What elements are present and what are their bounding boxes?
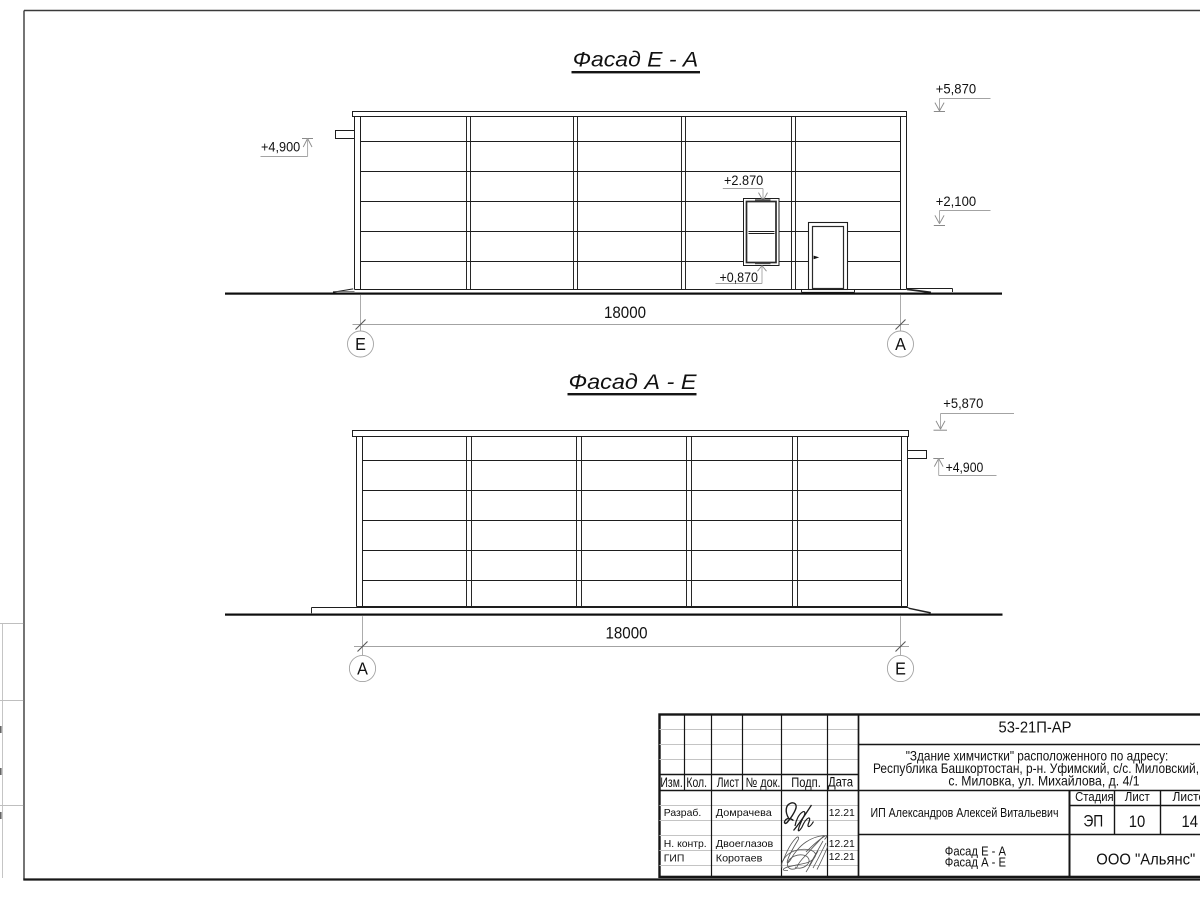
svg-text:53-21П-АР: 53-21П-АР [999,720,1072,737]
svg-text:Листов: Листов [1173,789,1200,804]
svg-text:Разраб.: Разраб. [664,807,701,819]
svg-text:Стадия: Стадия [1075,789,1114,804]
svg-text:Коротаев: Коротаев [716,854,763,865]
svg-text:Изм.: Изм. [660,775,682,790]
svg-text:№ док.: № док. [746,775,781,790]
svg-text:18000: 18000 [604,304,646,322]
svg-text:с. Миловка, ул. Михайлова, д.: с. Миловка, ул. Михайлова, д. 4/1 [948,772,1139,788]
svg-text:Фасад А - Е: Фасад А - Е [945,855,1006,870]
svg-text:Лист: Лист [717,775,739,790]
svg-text:А: А [895,334,906,354]
svg-text:Фасад Е - А: Фасад Е - А [573,48,699,72]
svg-text:+4,900: +4,900 [261,139,300,155]
svg-text:12.21: 12.21 [829,808,855,819]
svg-text:+2.870: +2.870 [724,172,763,188]
svg-text:12.21: 12.21 [829,852,855,863]
svg-text:+0,870: +0,870 [720,269,759,285]
svg-text:Н. контр.: Н. контр. [664,839,707,850]
svg-text:12.21: 12.21 [829,839,855,850]
svg-text:+4,900: +4,900 [946,459,984,475]
svg-text:Двоеглазов: Двоеглазов [716,839,774,850]
svg-text:18000: 18000 [606,625,648,643]
svg-text:ИП Александров Алексей Виталье: ИП Александров Алексей Витальевич [871,805,1059,820]
svg-text:Е: Е [355,334,366,354]
svg-text:Лист: Лист [1125,789,1150,804]
svg-text:Е: Е [895,659,906,679]
svg-text:Дата: Дата [828,774,854,789]
svg-text:Кол.: Кол. [686,775,707,790]
svg-text:10: 10 [1129,813,1146,831]
svg-text:А: А [357,659,368,679]
svg-text:+2,100: +2,100 [936,193,976,209]
svg-text:Фасад А - Е: Фасад А - Е [569,370,698,394]
svg-text:+5,870: +5,870 [936,80,976,96]
svg-text:+5,870: +5,870 [943,395,983,411]
svg-text:ЭП: ЭП [1083,813,1103,831]
svg-text:Подп.: Подп. [791,775,821,790]
svg-text:14: 14 [1182,813,1199,831]
svg-text:ООО "Альянс": ООО "Альянс" [1096,851,1195,868]
svg-text:ГИП: ГИП [664,854,685,865]
svg-text:Домрачева: Домрачева [716,808,772,819]
